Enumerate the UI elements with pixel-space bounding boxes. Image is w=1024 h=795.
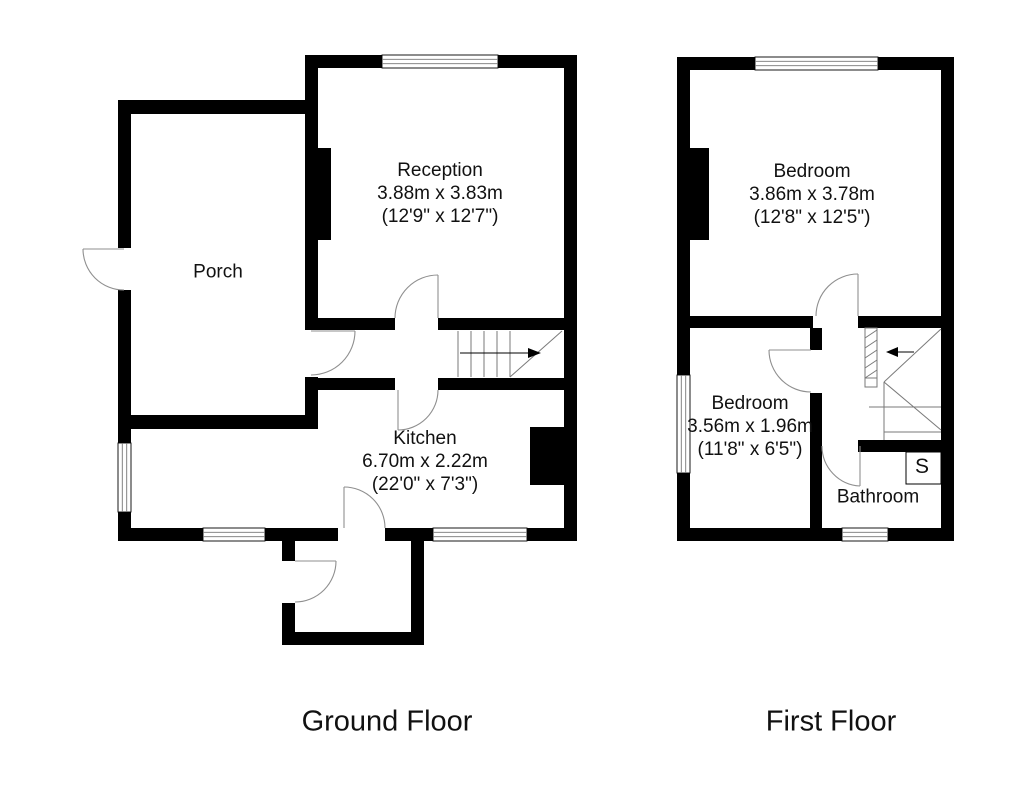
room-name: Porch: [193, 260, 243, 283]
kitchen-door: [398, 390, 438, 430]
floorplan-canvas: Porch Reception 3.88m x 3.83m (12'9" x 1…: [0, 0, 1024, 795]
first-floor-title: First Floor: [766, 706, 897, 739]
kitchen-rear-window-left: [203, 528, 265, 541]
extension-side-door: [295, 561, 336, 602]
ground-floor-title: Ground Floor: [302, 706, 473, 739]
bedroom2-label: Bedroom 3.56m x 1.96m (11'8" x 6'5"): [687, 392, 813, 462]
room-name: Bedroom: [687, 392, 813, 415]
porch-label: Porch: [193, 260, 243, 283]
reception-label: Reception 3.88m x 3.83m (12'9" x 12'7"): [377, 159, 503, 229]
room-name: Bedroom: [749, 160, 875, 183]
first-floor-plan: [677, 57, 954, 541]
bedroom2-door: [769, 350, 811, 392]
room-name: Kitchen: [362, 427, 488, 450]
bedroom1-door: [816, 274, 858, 316]
ground-floor-walls: [118, 55, 577, 645]
kitchen-side-window: [118, 443, 131, 512]
kitchen-label: Kitchen 6.70m x 2.22m (22'0" x 7'3"): [362, 427, 488, 497]
room-size-metric: 3.88m x 3.83m: [377, 182, 503, 205]
reception-window: [382, 55, 498, 68]
stairs-up-arrow-icon: [528, 348, 541, 358]
reception-door: [395, 275, 438, 318]
room-size-imperial: (11'8" x 6'5"): [687, 439, 813, 462]
bathroom-door: [822, 446, 860, 486]
porch-hall-door: [311, 331, 355, 375]
room-size-imperial: (22'0" x 7'3"): [362, 474, 488, 497]
floorplan-drawing: [0, 0, 1024, 795]
room-name: Reception: [377, 159, 503, 182]
kitchen-rear-window-right: [433, 528, 527, 541]
room-size-metric: 3.86m x 3.78m: [749, 183, 875, 206]
ground-floor-stairs: [458, 331, 562, 377]
storage-label: S: [915, 454, 929, 480]
room-size-metric: 3.56m x 1.96m: [687, 415, 813, 438]
ground-floor-plan: [83, 55, 577, 645]
bathroom-window: [842, 528, 888, 541]
room-size-imperial: (12'8" x 12'5"): [749, 207, 875, 230]
room-size-metric: 6.70m x 2.22m: [362, 450, 488, 473]
bathroom-label: Bathroom: [837, 485, 919, 508]
first-floor-stairs: [865, 328, 941, 440]
room-name: S: [915, 454, 929, 480]
room-size-imperial: (12'9" x 12'7"): [377, 206, 503, 229]
front-door: [83, 249, 124, 290]
first-floor-windows: [677, 57, 888, 541]
stairs-down-arrow-icon: [886, 347, 898, 357]
bedroom1-window: [755, 57, 878, 70]
room-name: Bathroom: [837, 485, 919, 508]
bedroom1-label: Bedroom 3.86m x 3.78m (12'8" x 12'5"): [749, 160, 875, 230]
